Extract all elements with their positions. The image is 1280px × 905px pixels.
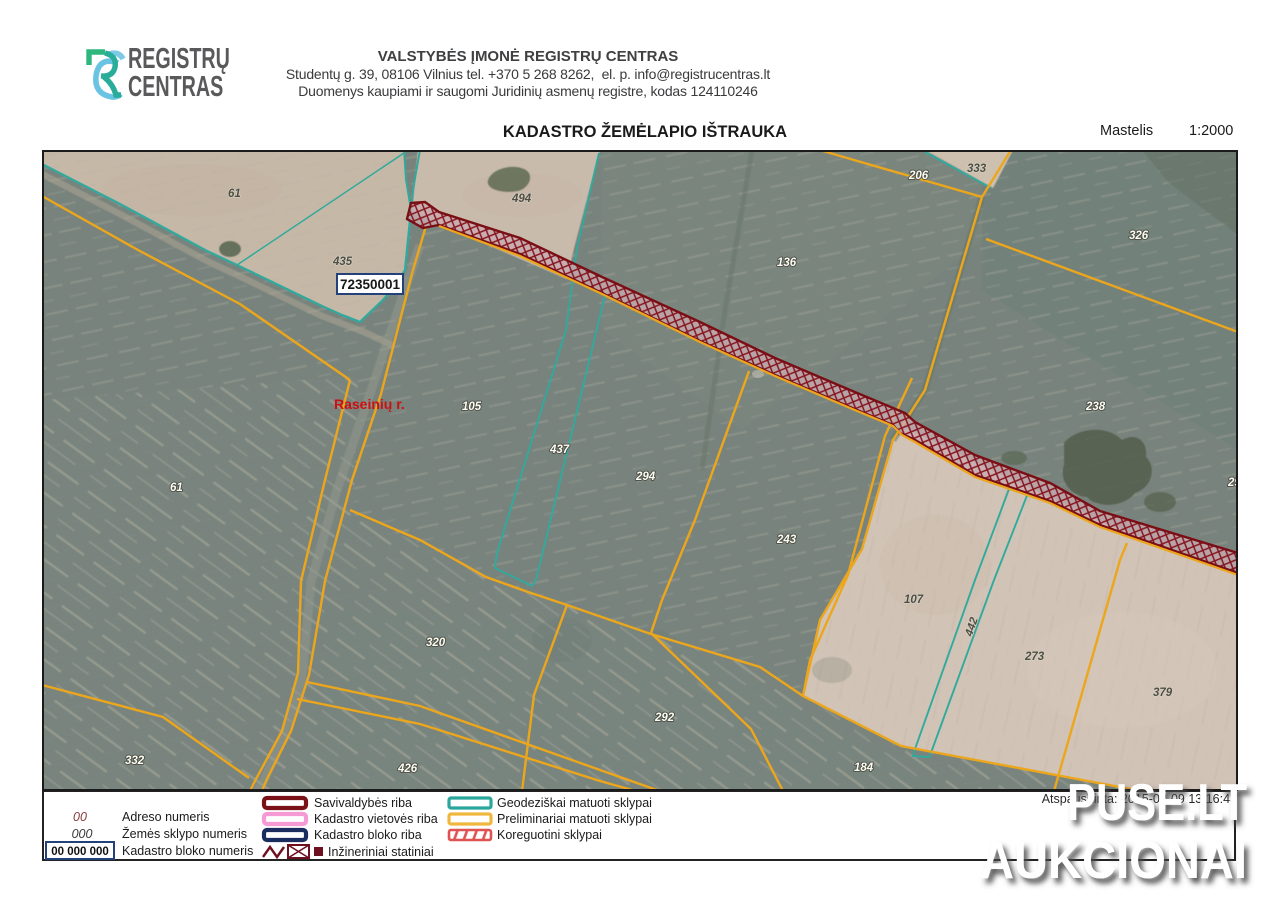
svg-text:00: 00 <box>73 810 87 824</box>
svg-text:Koreguotini sklypai: Koreguotini sklypai <box>497 828 602 842</box>
svg-text:00 000 000: 00 000 000 <box>51 846 109 858</box>
svg-text:Atspausdinta: 2015-03-09 13:16: Atspausdinta: 2015-03-09 13:16:43 <box>1042 792 1237 806</box>
svg-text:000: 000 <box>72 827 93 841</box>
svg-text:Kadastro vietovės riba: Kadastro vietovės riba <box>314 812 438 826</box>
svg-text:Preliminariai matuoti sklypai: Preliminariai matuoti sklypai <box>497 812 652 826</box>
svg-text:Inžineriniai statiniai: Inžineriniai statiniai <box>328 845 434 859</box>
svg-text:Savivaldybės riba: Savivaldybės riba <box>314 796 412 810</box>
svg-text:Kadastro bloko numeris: Kadastro bloko numeris <box>122 844 253 858</box>
svg-text:Kadastro bloko riba: Kadastro bloko riba <box>314 828 422 842</box>
svg-text:Adreso numeris: Adreso numeris <box>122 810 210 824</box>
svg-text:Geodeziškai matuoti sklypai: Geodeziškai matuoti sklypai <box>497 796 652 810</box>
svg-text:Žemės sklypo numeris: Žemės sklypo numeris <box>122 826 247 841</box>
